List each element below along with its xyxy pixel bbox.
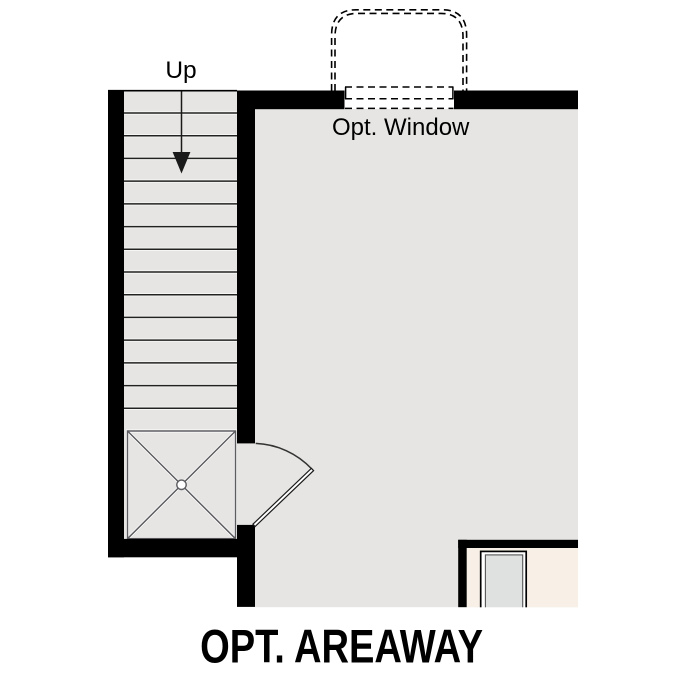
svg-text:Opt. Window: Opt. Window (332, 114, 470, 141)
svg-text:OPT. AREAWAY: OPT. AREAWAY (200, 620, 483, 673)
svg-text:Up: Up (165, 57, 196, 84)
